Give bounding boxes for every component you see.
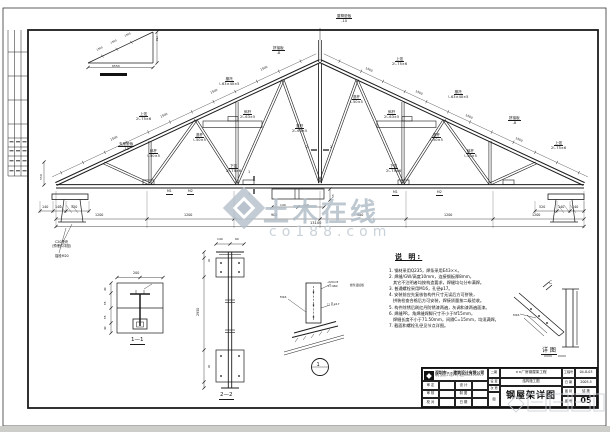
- company-address: 地址:深圳市××路××号 电话:0755-×××××××: [435, 375, 484, 377]
- revision-cell: 图: [488, 392, 500, 407]
- sign-value: [439, 390, 455, 399]
- drawing-title-cell: 钢屋架详图: [500, 386, 562, 407]
- field-label: 日 期: [562, 378, 575, 387]
- field-value: 结 施: [575, 387, 597, 396]
- sign-label: 审 定: [422, 381, 439, 390]
- revision-cell: 次 更: [488, 385, 500, 392]
- revision-cell: 二期: [488, 368, 500, 378]
- notes-title: 说 明:: [395, 252, 549, 262]
- notes-block: 说 明: 1. 钢材采用Q235，焊条采用E43××。2. 焊缝/GW/高度10…: [389, 252, 549, 329]
- field-value: 04-8-03: [575, 368, 597, 378]
- sign-value: [439, 398, 455, 407]
- field-label: 工程号: [562, 368, 575, 378]
- sign-value: [439, 381, 455, 390]
- sign-label: 制 图: [455, 390, 472, 399]
- drawing-stage-cell: 结构施工图: [500, 378, 562, 386]
- sign-value: [472, 398, 488, 407]
- field-value: 05: [575, 396, 597, 407]
- company-logo-icon: [424, 371, 434, 381]
- revision-cell: 设 变: [488, 378, 500, 385]
- sign-label: 设 计: [455, 381, 472, 390]
- sign-label: 审 核: [422, 390, 439, 399]
- page-edge-band: [0, 426, 610, 432]
- field-label: 图 号: [562, 396, 575, 407]
- sign-value: [472, 390, 488, 399]
- cad-drawing-sheet: 上弦2∟75×6檩托∟63×40×5拼接板-8屋脊垫板-10上弦2∟75×6檩托…: [0, 0, 610, 432]
- project-name-cell: ××厂房钢屋架工程: [500, 368, 562, 378]
- title-block: 深圳市××建筑设计有限公司 地址:深圳市××路××号 电话:0755-×××××…: [421, 367, 598, 408]
- notes-lines: 1. 钢材采用Q235，焊条采用E43××。2. 焊缝/GW/高度10mm，连接…: [389, 268, 549, 329]
- company-cell: 深圳市××建筑设计有限公司 地址:深圳市××路××号 电话:0755-×××××…: [422, 368, 488, 381]
- sign-value: [472, 381, 488, 390]
- field-value: 2005.5: [575, 378, 597, 387]
- note-line: 7. 截面和螺栓孔径见节点详图。: [389, 323, 549, 329]
- field-label: 图 别: [562, 387, 575, 396]
- sign-label: 日 期: [455, 398, 472, 407]
- sign-label: 校 对: [422, 398, 439, 407]
